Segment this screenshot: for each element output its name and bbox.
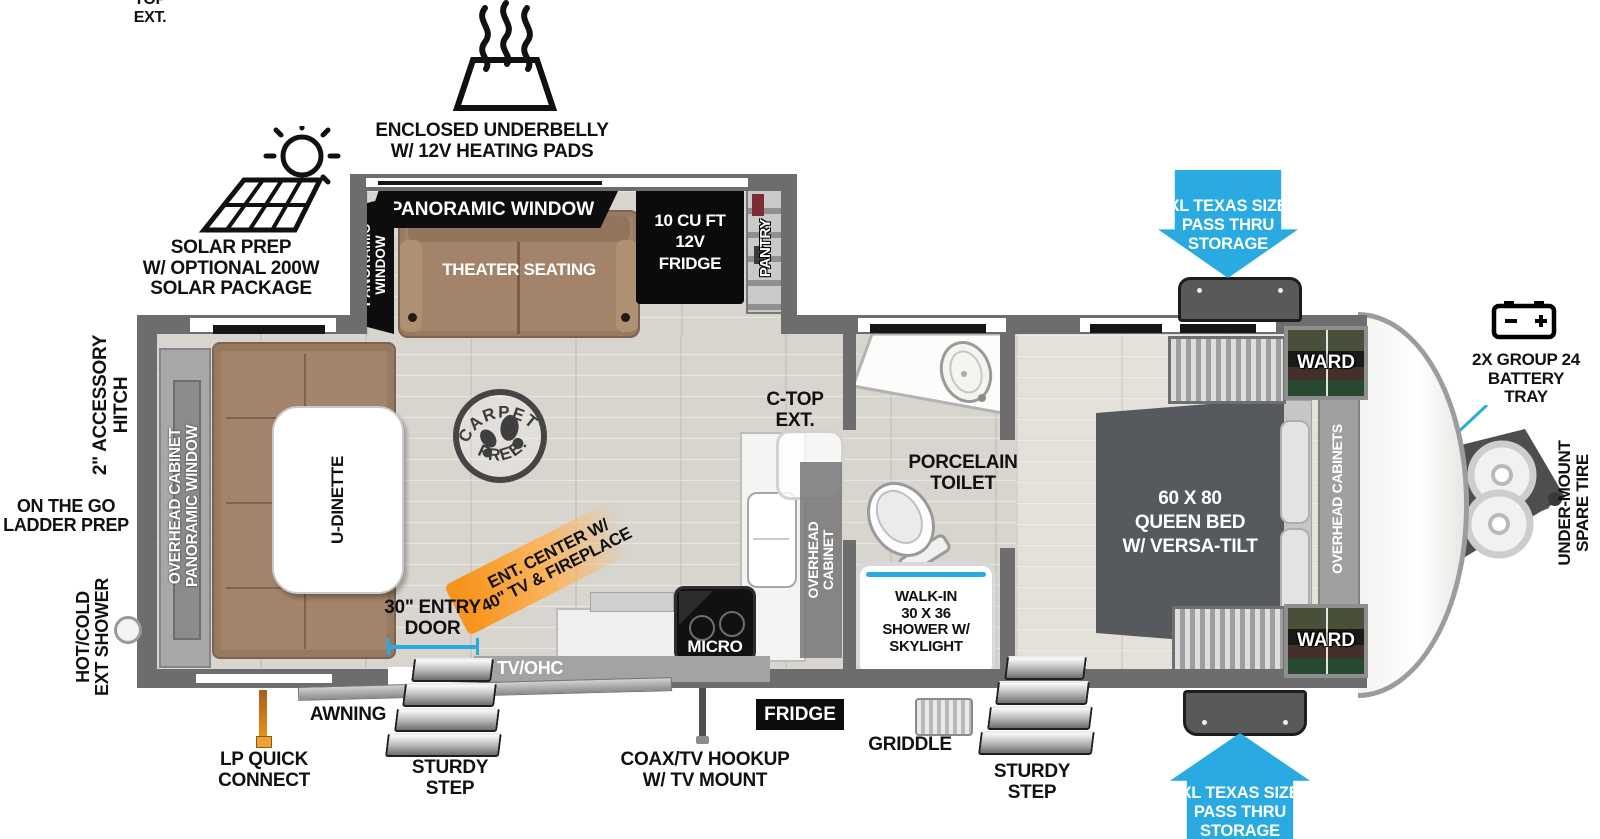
accessory-hitch-label: 2" ACCESSORY HITCH (90, 320, 134, 490)
step-tread (986, 706, 1092, 730)
step-tread (385, 733, 502, 757)
floorplan-diagram: PANORAMIC WINDOW PANORAMIC WINDOW THEATE… (0, 0, 1600, 839)
fridge-label: FRIDGE (764, 704, 836, 726)
micro-cooktop: MICRO (674, 586, 756, 662)
griddle-unit (915, 698, 973, 736)
screw-dot (1283, 720, 1288, 725)
sturdy-step-label-right: STURDY STEP (972, 760, 1092, 806)
pass-thru-label: XL TEXAS SIZE PASS THRU STORAGE (1180, 784, 1299, 839)
overhead-cabinets-label: OVERHEAD CABINETS (1325, 399, 1351, 599)
theater-seating-sofa: THEATER SEATING (398, 210, 640, 338)
screw-dot (1202, 720, 1207, 725)
bedroom-window-glass-1 (1090, 324, 1162, 333)
screw-dot (1197, 288, 1202, 293)
vanity-drain-icon (961, 371, 967, 377)
slideout-left-wall (350, 174, 367, 334)
step-tread (978, 731, 1095, 755)
step-tread (402, 683, 497, 707)
burner (719, 611, 745, 637)
entry-door-label: 30" ENTRY DOOR (360, 596, 505, 642)
underbelly-label: ENCLOSED UNDERBELLY W/ 12V HEATING PADS (352, 116, 632, 168)
kitchen-back-cabinet (590, 592, 674, 612)
bath-wall-left-lower (843, 540, 856, 670)
bedroom-overhead-cabinets: OVERHEAD CABINETS (1318, 394, 1360, 606)
spare-tire-label: UNDER-MOUNT SPARE TIRE (1554, 428, 1594, 578)
pass-thru-label: XL TEXAS SIZE PASS THRU STORAGE (1168, 197, 1287, 253)
lp-quick-connect-label: LP QUICK CONNECT (196, 748, 332, 794)
ctop-ext-label-main: C-TOP EXT. (740, 388, 850, 434)
rear-storage-label: OVERHEAD CABINET PANORAMIC WINDOW (162, 356, 206, 656)
dinette-bottom-window (196, 674, 332, 683)
coax-base (696, 736, 709, 744)
screw-dot (1278, 288, 1283, 293)
step-tread (995, 681, 1090, 705)
entry-door-dimension-line (388, 645, 478, 649)
fridge-12v-label: 10 CU FT 12V FRIDGE (654, 210, 725, 274)
kitchen-sink (747, 492, 797, 588)
dinette-table: U-DINETTE (272, 406, 404, 594)
halfbath-vanity (848, 326, 1013, 426)
ext-shower-knob (114, 616, 142, 644)
pillow (1280, 420, 1310, 524)
solar-prep-label: SOLAR PREP W/ OPTIONAL 200W SOLAR PACKAG… (116, 236, 346, 302)
ward-label: WARD (1297, 352, 1355, 374)
bath-wall-right-upper (1000, 334, 1015, 440)
theater-seating-label: THEATER SEATING (400, 250, 638, 290)
panoramic-window-banner-top: PANORAMIC WINDOW (366, 191, 618, 228)
carpet-free-stamp: CARPET FREE! (438, 374, 561, 497)
pass-thru-storage-bottom (1172, 606, 1286, 674)
battery-tray-label: 2X GROUP 24 BATTERY TRAY (1452, 346, 1600, 412)
dinette-top-window-glass (213, 325, 325, 334)
solar-prep-icon (192, 126, 347, 238)
slideout-window-glass (378, 181, 602, 185)
step-tread (411, 658, 494, 682)
u-dinette-label: U-DINETTE (323, 415, 353, 585)
exterior-fridge: FRIDGE (756, 699, 844, 730)
lp-nozzle (256, 736, 272, 748)
halfbath-window-glass (870, 324, 986, 333)
pantry: PANTRY (746, 182, 786, 314)
bath-wall-right-lower (1000, 548, 1015, 670)
micro-label: MICRO (677, 637, 753, 657)
step-tread (1004, 656, 1087, 680)
slideout-right-wall (781, 174, 797, 334)
storage-door-bottom (1183, 690, 1307, 736)
lp-quick-connect-pipe (259, 690, 267, 740)
awning-label: AWNING (300, 702, 396, 728)
sturdy-step-label-left: STURDY STEP (390, 756, 510, 802)
pass-thru-storage-top (1168, 336, 1286, 404)
shower-skylight-stripe (866, 572, 986, 577)
coax-tv-label: COAX/TV HOOKUP W/ TV MOUNT (612, 748, 798, 794)
pass-thru-arrow-top: XL TEXAS SIZE PASS THRU STORAGE (1158, 170, 1298, 278)
storage-door-top (1178, 277, 1302, 322)
wardrobe-bottom: WARD (1284, 604, 1368, 678)
heating-pads-icon (445, 0, 565, 114)
shower-label: WALK-IN 30 X 36 SHOWER W/ SKYLIGHT (860, 578, 992, 666)
ext-shower-label: HOT/COLD EXT SHOWER (71, 562, 115, 712)
pass-thru-arrow-bottom: XL TEXAS SIZE PASS THRU STORAGE (1170, 733, 1310, 839)
ward-label: WARD (1297, 630, 1355, 652)
bedroom-steps (979, 656, 1103, 755)
step-tread (393, 708, 499, 732)
sofa-cupholder-left (408, 313, 417, 322)
ladder-prep-label: ON THE GO LADDER PREP (0, 494, 132, 538)
panoramic-window-label: PANORAMIC WINDOW (390, 199, 594, 221)
pantry-label: PANTRY (754, 188, 778, 308)
sofa-cupholder-right (621, 313, 630, 322)
porcelain-toilet-label: PORCELAIN TOILET (888, 452, 1038, 496)
wardrobe-top: WARD (1284, 326, 1368, 400)
battery-icon (1488, 294, 1560, 344)
griddle-label: GRIDDLE (850, 732, 970, 758)
entry-steps (386, 658, 510, 757)
vanity-faucet-icon (978, 394, 986, 402)
fridge-12v: 10 CU FT 12V FRIDGE (636, 180, 744, 304)
sink-divider (753, 538, 789, 540)
bedroom-window-glass-2 (1180, 324, 1256, 333)
coax-hookup-post (699, 688, 706, 738)
kitchen-overhead-cabinet-label: OVERHEAD CABINET (804, 490, 838, 630)
kitchen-overhead-cabinet: OVERHEAD CABINET (800, 462, 842, 658)
walk-in-shower: WALK-IN 30 X 36 SHOWER W/ SKYLIGHT (856, 562, 996, 678)
